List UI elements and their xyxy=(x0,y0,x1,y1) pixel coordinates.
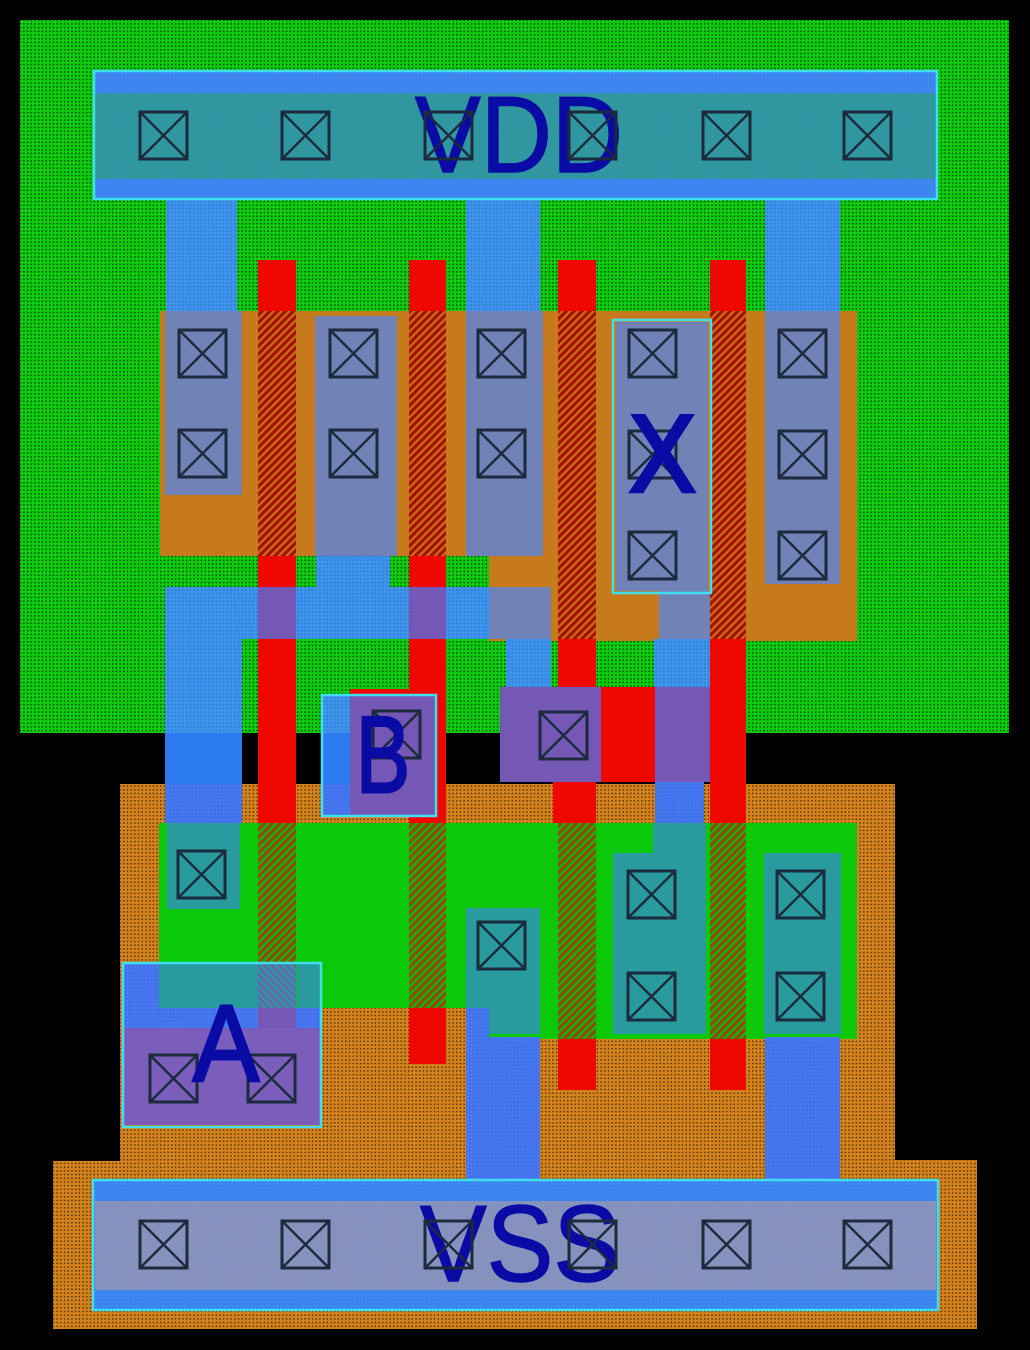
svg-text:X: X xyxy=(630,393,695,515)
svg-text:A: A xyxy=(193,983,259,1105)
svg-text:B: B xyxy=(356,694,410,816)
